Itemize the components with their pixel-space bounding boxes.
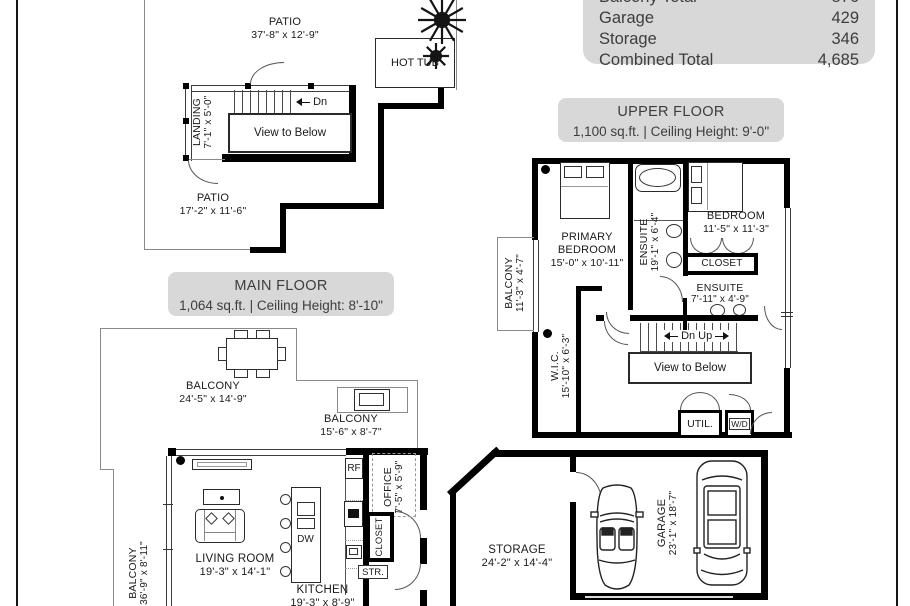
main-floor-subtitle: 1,064 sq.ft. | Ceiling Height: 8'-10" <box>168 297 394 314</box>
summary-value: 429 <box>831 8 859 29</box>
wall-segment <box>784 158 790 208</box>
balcony-upper-label: BALCONY 11'-3" x 4'-7" <box>502 246 528 320</box>
bifold-door-arc <box>690 238 706 254</box>
bed-fold-line <box>707 163 708 210</box>
floor-plan-page: Balcony Total 876 Garage 429 Storage 346… <box>0 0 910 606</box>
view-to-below-box: View to Below <box>228 113 352 153</box>
door-arc <box>604 321 628 345</box>
main-floor-title: MAIN FLOOR <box>168 276 394 297</box>
garage-door-line <box>585 596 733 598</box>
area-summary-box: Balcony Total 876 Garage 429 Storage 346… <box>583 0 875 64</box>
counter-divider <box>345 540 363 541</box>
dishwasher-label: DW <box>292 534 319 545</box>
microwave-inner <box>349 548 358 555</box>
sink-icon <box>297 518 315 529</box>
kitchen-label: KITCHEN 19'-3" x 8'-9" <box>275 584 370 606</box>
sink-icon <box>297 502 315 516</box>
stairs-direction: Dn Up <box>662 330 731 342</box>
window <box>166 456 172 606</box>
grill-inner <box>359 393 384 406</box>
room-dims: 24'-2" x 14'-4" <box>467 557 567 570</box>
room-name: PATIO <box>215 16 355 29</box>
room-name: BALCONY <box>127 547 140 599</box>
bed-icon <box>560 162 610 219</box>
wall-segment <box>378 103 444 109</box>
balcony-outline <box>113 469 114 606</box>
room-dims: 15'-10" x 6'-3" <box>561 334 574 399</box>
room-dims: 19'-1" x 6'-4" <box>650 213 663 272</box>
bifold-door-arc <box>738 238 754 254</box>
sink-icon <box>666 224 682 238</box>
column-dot <box>176 456 185 465</box>
view-to-below-label: View to Below <box>254 127 326 139</box>
str-label-box: STR. <box>358 565 388 579</box>
stool-icon <box>280 566 291 577</box>
room-dims: 17'-2" x 11'-6" <box>153 205 273 218</box>
rail-post <box>308 83 314 89</box>
room-name: GARAGE <box>656 499 669 547</box>
bathtub-icon <box>635 164 681 192</box>
balcony-outline <box>296 328 297 381</box>
room-name: STORAGE <box>467 544 567 557</box>
wall-segment <box>532 158 538 240</box>
balcony-main-label: BALCONY 24'-5" x 14'-9" <box>163 380 263 406</box>
room-dims: 11'-5" x 11'-3" <box>698 223 774 236</box>
wall-segment <box>570 502 576 600</box>
rail-post <box>183 83 189 89</box>
fridge-icon: RF <box>345 458 363 479</box>
patio-outline <box>144 0 145 250</box>
arrow-line <box>670 336 678 337</box>
wall-segment <box>280 203 384 209</box>
room-dims: 11'-3" x 4'-7" <box>515 254 528 312</box>
view-to-below-box: View to Below <box>628 352 752 384</box>
primary-bedroom-label: PRIMARY BEDROOM 15'-0" x 10'-11" <box>545 231 629 270</box>
door-arc <box>700 392 720 410</box>
stove-icon <box>344 501 363 527</box>
room-dims: 15'-6" x 8'-7" <box>301 426 401 439</box>
room-name: PRIMARY <box>545 231 629 244</box>
room-name: W.I.C. <box>549 351 562 381</box>
corner-post <box>168 448 176 456</box>
summary-value: 876 <box>831 0 859 8</box>
tv-icon <box>203 489 240 505</box>
wall-segment <box>784 368 790 438</box>
stool-icon <box>280 542 291 553</box>
door-arc <box>395 563 421 590</box>
rail-post <box>183 118 189 124</box>
door-arc <box>764 306 782 330</box>
upper-floor-subtitle: 1,100 sq.ft. | Ceiling Height: 9'-0" <box>558 123 784 140</box>
landing-label: LANDING 7'-1" x 5'-0" <box>190 87 216 157</box>
pillow <box>691 187 702 204</box>
window-tick <box>781 316 793 317</box>
pillow <box>564 166 582 178</box>
pillow <box>205 512 218 525</box>
toilet-icon <box>666 252 682 268</box>
closet-upper-label: CLOSET <box>686 257 758 270</box>
wic-label: W.I.C. 15'-10" x 6'-3" <box>548 329 574 403</box>
door-arc <box>660 276 683 302</box>
room-name: KITCHEN <box>275 584 370 597</box>
util-closet: UTIL. <box>678 410 722 438</box>
ensuite-second-label: ENSUITE 7'-11" x 4'-9" <box>688 282 752 306</box>
pillow <box>222 512 235 525</box>
wall-segment <box>420 538 427 564</box>
wall-segment <box>576 286 581 432</box>
summary-label: Storage <box>599 29 657 50</box>
ensuite-primary-label: ENSUITE 19'-1" x 6'-4" <box>637 205 663 279</box>
wall-segment <box>492 450 768 457</box>
room-name: CLOSET <box>374 517 387 556</box>
util-label: UTIL. <box>687 418 713 430</box>
room-name: BEDROOM <box>545 244 629 257</box>
wall-segment <box>761 450 768 600</box>
wall-segment <box>280 203 286 253</box>
sports-car-icon <box>591 482 643 594</box>
room-dims: 19'-3" x 8'-9" <box>275 597 370 606</box>
room-dims: 23'-1" x 18'-7" <box>668 491 681 556</box>
summary-value: 346 <box>831 29 859 50</box>
summary-label: Combined Total <box>599 50 713 71</box>
chair-icon <box>256 330 270 339</box>
room-name: ENSUITE <box>688 282 752 294</box>
room-name: LANDING <box>191 98 204 146</box>
closet-main-label: CLOSET <box>374 512 386 562</box>
arrow-line <box>715 336 723 337</box>
stove-burners <box>348 509 359 518</box>
chair-icon <box>256 369 270 378</box>
room-name: CLOSET <box>686 257 758 270</box>
storage-label: STORAGE 24'-2" x 14'-4" <box>467 544 567 570</box>
stairs-direction: Dn <box>296 96 327 108</box>
balcony-outline <box>100 328 297 329</box>
door-arc <box>188 160 218 184</box>
column-dot <box>541 165 550 174</box>
wall-segment <box>570 452 576 472</box>
room-name: ENSUITE <box>638 219 651 266</box>
summary-label: Balcony Total <box>599 0 697 8</box>
patio-outline <box>144 249 252 250</box>
chair-icon <box>234 330 248 339</box>
sofa-arm <box>204 510 205 541</box>
bifold-door-arc <box>706 238 722 254</box>
door-arc <box>250 62 284 84</box>
main-floor-title-box: MAIN FLOOR 1,064 sq.ft. | Ceiling Height… <box>168 272 394 316</box>
summary-label: Garage <box>599 8 654 29</box>
wd-label: W/D <box>729 418 750 430</box>
dn-label: Dn <box>313 96 327 108</box>
window-tick <box>163 549 173 550</box>
balcony-outline <box>417 380 418 448</box>
door-arc <box>680 392 700 410</box>
arrow-right-icon <box>723 332 729 340</box>
door-arc <box>729 394 751 410</box>
wall-segment <box>686 271 758 275</box>
upper-floor-title-box: UPPER FLOOR 1,100 sq.ft. | Ceiling Heigh… <box>558 98 784 142</box>
wall-segment <box>450 492 456 606</box>
media-console-icon <box>192 459 252 470</box>
room-dims: 15'-0" x 10'-11" <box>545 257 629 270</box>
wall-segment <box>250 247 286 253</box>
room-dims: 19'-3" x 14'-1" <box>185 566 285 579</box>
wall-segment <box>378 103 384 209</box>
wall-segment <box>576 286 602 291</box>
summary-row: Balcony Total 876 <box>599 0 859 8</box>
bed-icon <box>688 162 743 212</box>
patio-roof-label: PATIO 37'-8" x 12'-9" <box>215 16 355 42</box>
str-label: STR. <box>362 567 384 578</box>
kitchen-island: DW <box>291 487 321 583</box>
summary-row: Combined Total 4,685 <box>599 50 859 71</box>
room-name: BALCONY <box>163 380 263 393</box>
patio-lower-label: PATIO 17'-2" x 11'-6" <box>153 192 273 218</box>
chair-icon <box>277 347 286 361</box>
dn-up-label: Dn Up <box>681 330 712 342</box>
arrow-line <box>302 102 310 103</box>
window-tick <box>163 504 173 505</box>
balcony-outline <box>100 328 101 470</box>
room-dims: 7'-1" x 5'-0" <box>203 96 216 149</box>
room-name: BALCONY <box>503 257 516 309</box>
tree-icon <box>408 0 470 76</box>
sliding-door <box>176 449 346 456</box>
pillow <box>691 166 702 183</box>
balcony-outline <box>100 469 114 470</box>
room-dims: 37'-8" x 12'-9" <box>215 29 355 42</box>
wall-segment <box>420 590 427 606</box>
view-to-below-label: View to Below <box>654 362 726 374</box>
page-frame-right <box>896 0 898 606</box>
bifold-door-arc <box>722 238 738 254</box>
wall-segment <box>420 448 427 510</box>
dining-table-icon <box>226 338 278 370</box>
wall-segment <box>447 447 501 498</box>
sofa-back <box>204 532 236 533</box>
balcony-bbq-label: BALCONY 15'-6" x 8'-7" <box>301 413 401 439</box>
room-dims: 24'-5" x 14'-9" <box>163 393 263 406</box>
summary-value: 4,685 <box>818 50 859 71</box>
wall-segment <box>596 315 604 321</box>
room-dims: 7'-5" x 5'-9" <box>394 461 407 514</box>
garage-label: GARAGE 23'-1" x 18'-7" <box>655 483 681 563</box>
pillow <box>586 166 604 178</box>
living-room-label: LIVING ROOM 19'-3" x 14'-1" <box>185 553 285 579</box>
window-tick <box>781 312 793 313</box>
microwave-icon <box>346 545 362 559</box>
chair-icon <box>218 347 227 361</box>
wall-segment <box>532 332 538 438</box>
wall-segment <box>222 154 356 162</box>
fridge-label: RF <box>347 463 360 474</box>
room-name: BEDROOM <box>698 210 774 223</box>
bed-fold-line <box>561 186 608 187</box>
bbq-grill-icon <box>354 389 390 411</box>
tub-basin <box>639 168 676 187</box>
bedroom-label: BEDROOM 11'-5" x 11'-3" <box>698 210 774 236</box>
balcony-side-label: BALCONY 36'-9" x 8'-11" <box>126 527 152 606</box>
wall-segment <box>630 315 758 321</box>
sofa-arm <box>235 510 236 541</box>
upper-floor-title: UPPER FLOOR <box>558 102 784 123</box>
suv-car-icon <box>694 458 750 588</box>
stool-icon <box>280 518 291 529</box>
balcony-outline <box>296 380 417 381</box>
chair-icon <box>234 369 248 378</box>
page-frame-left <box>16 0 18 606</box>
room-name: BALCONY <box>301 413 401 426</box>
room-name: OFFICE <box>382 467 395 507</box>
room-name: LIVING ROOM <box>185 553 285 566</box>
summary-row: Garage 429 <box>599 8 859 29</box>
console-inner <box>197 462 247 467</box>
summary-row: Storage 346 <box>599 29 859 50</box>
tv-dot <box>220 496 224 500</box>
window <box>785 208 791 368</box>
sofa-icon <box>195 509 245 543</box>
room-name: PATIO <box>153 192 273 205</box>
stool-icon <box>280 494 291 505</box>
room-dims: 36'-9" x 8'-11" <box>139 541 152 605</box>
